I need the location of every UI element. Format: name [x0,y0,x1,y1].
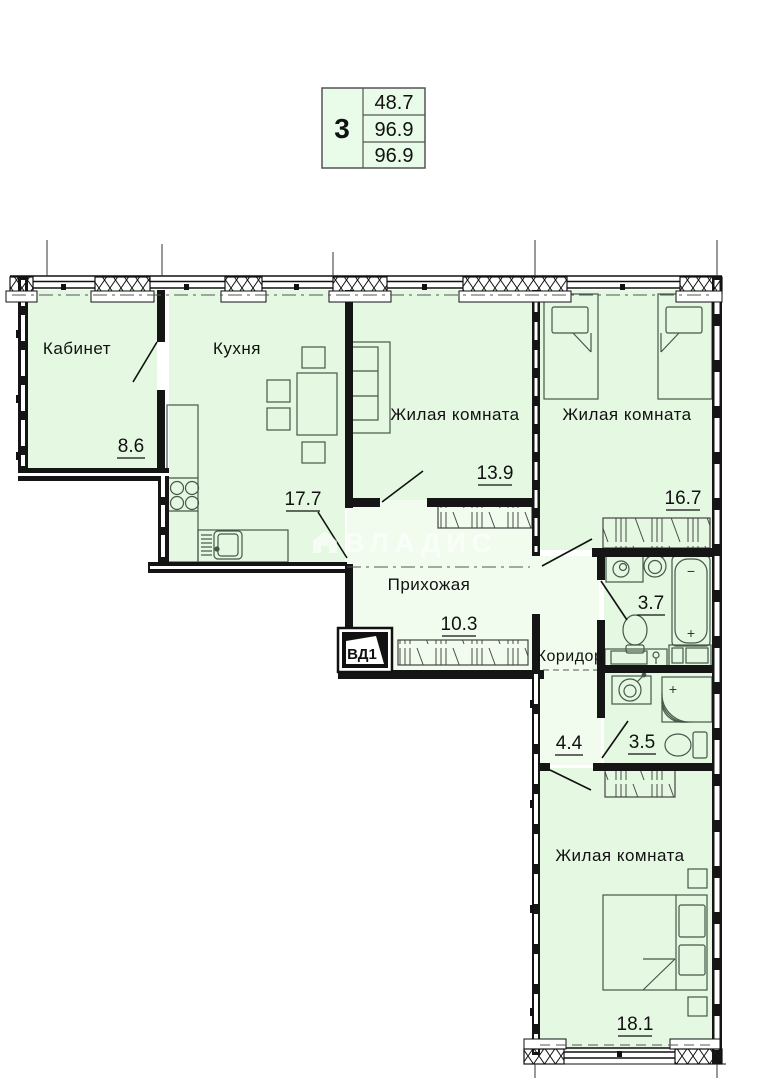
wall-kitchen-living1 [345,290,353,508]
area-kitchen: 17.7 [285,489,322,510]
area-living3: 18.1 [617,1014,654,1035]
vent-label: ВД1 [347,646,377,663]
wall-living1-hall-right [427,498,532,507]
label-living2: Жилая комната [562,405,691,424]
bottom-wall-piers [524,1049,722,1064]
wall-living1-hall-left [347,498,380,507]
legend: 3 48.7 96.9 96.9 [322,88,425,168]
label-hallway: Прихожая [388,575,471,594]
label-living1: Жилая комната [390,405,519,424]
wall-bath1-left-top [597,557,605,580]
watermark-text: ВЛАДИС [345,528,497,558]
room-living3-fill [539,768,713,1050]
floor-plan-page: − + + [0,0,766,1080]
legend-rooms-count: 3 [334,113,350,144]
area-shower-room: 3.5 [629,732,655,753]
area-living1: 13.9 [477,463,514,484]
label-corridor: Коридор [537,648,604,665]
wall-living2-bath [592,548,720,557]
wall-kabinet-kitchen-top [157,290,165,342]
wall-corridor-living3-right [593,763,720,771]
area-corridor: 4.4 [556,733,583,754]
area-hallway: 10.3 [441,614,478,635]
label-kitchen: Кухня [213,339,261,358]
wall-bath2-left [597,673,605,718]
area-kabinet: 8.6 [118,436,144,457]
wall-bath-divider [597,665,720,673]
vent-shaft: ВД1 [338,628,392,672]
floor-plan-canvas: − + + [0,0,766,1080]
legend-row1: 48.7 [375,92,414,114]
legend-row2: 96.9 [375,119,414,141]
area-bathroom: 3.7 [638,593,664,614]
label-living3: Жилая комната [555,846,684,865]
window-tick-bottom [617,1051,622,1057]
shower-plus: + [669,681,677,697]
passage-fill [532,556,540,614]
bathtub-minus: − [687,563,695,579]
area-living2: 16.7 [665,488,702,509]
label-kabinet: Кабинет [43,339,111,358]
legend-row3: 96.9 [375,145,414,167]
wall-kabinet-kitchen-bottom [157,390,165,472]
bathtub-plus: + [687,625,695,641]
room-kitchen-fill [169,290,345,564]
wall-hallway-left [345,564,353,630]
